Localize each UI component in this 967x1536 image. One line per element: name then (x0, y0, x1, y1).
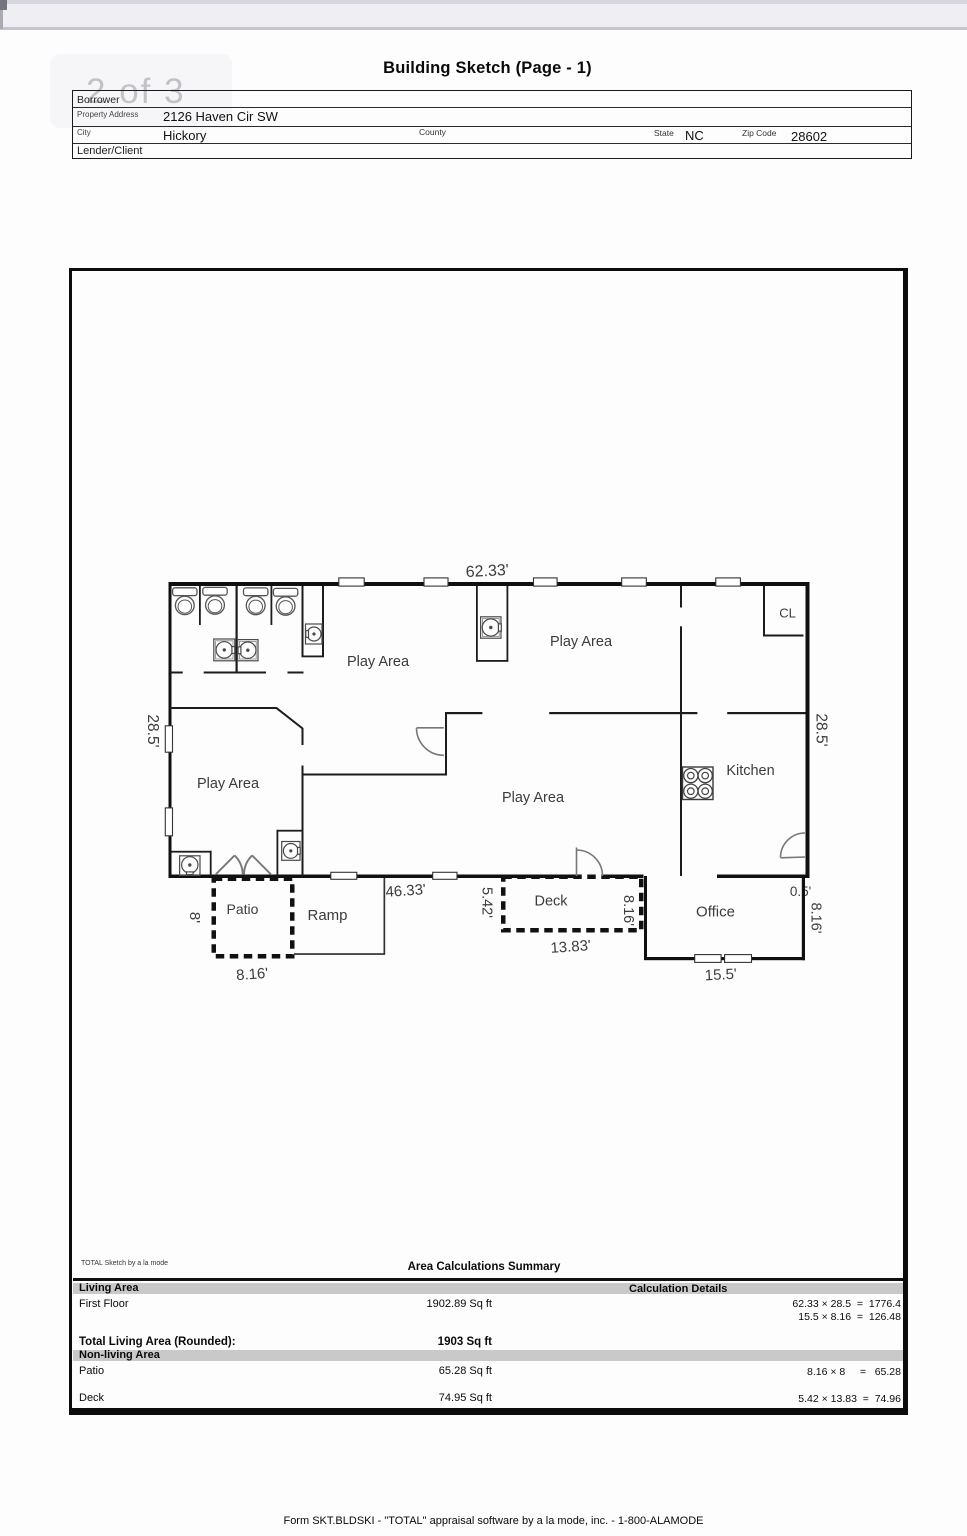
svg-text:28.5': 28.5' (144, 714, 161, 747)
svg-text:13.83': 13.83' (550, 937, 592, 957)
svg-text:Play Area: Play Area (347, 654, 410, 670)
svg-text:15.5': 15.5' (704, 966, 737, 985)
svg-text:8': 8' (186, 912, 203, 923)
svg-text:62.33': 62.33' (465, 562, 509, 581)
svg-text:0.5': 0.5' (790, 884, 811, 899)
svg-text:Kitchen: Kitchen (726, 763, 774, 779)
svg-text:46.33': 46.33' (385, 881, 427, 901)
svg-text:28.5': 28.5' (813, 713, 830, 746)
svg-text:Play Area: Play Area (197, 776, 260, 792)
svg-text:Deck: Deck (534, 894, 568, 910)
svg-text:Patio: Patio (227, 901, 259, 917)
svg-text:Play Area: Play Area (550, 634, 613, 650)
svg-text:8.16': 8.16' (620, 895, 636, 926)
svg-text:8.16': 8.16' (808, 903, 824, 934)
svg-text:CL: CL (779, 606, 796, 621)
svg-text:5.42': 5.42' (479, 887, 495, 918)
svg-text:Ramp: Ramp (307, 907, 347, 924)
svg-text:8.16': 8.16' (236, 965, 269, 984)
svg-text:Office: Office (696, 904, 735, 921)
svg-text:Play Area: Play Area (502, 790, 565, 806)
